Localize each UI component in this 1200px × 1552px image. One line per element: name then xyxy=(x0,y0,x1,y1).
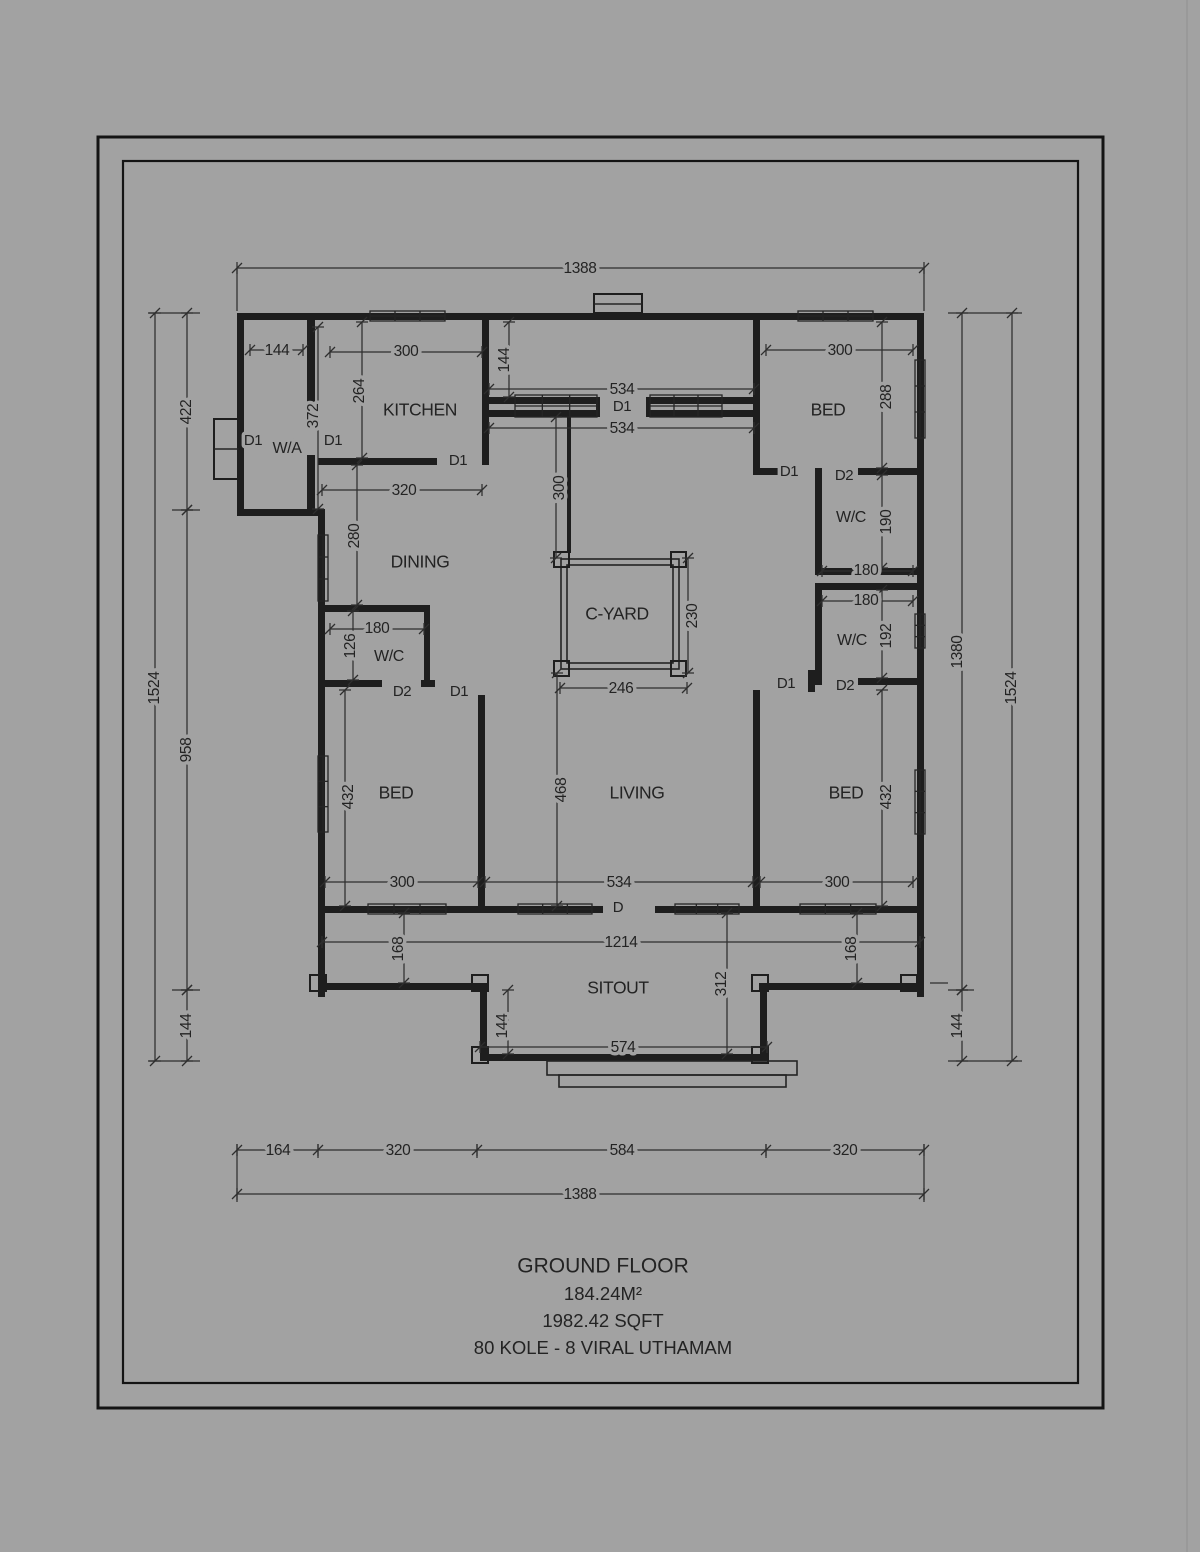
dim-sitout-144: 144 xyxy=(494,1013,511,1038)
dim-cyard-230: 230 xyxy=(684,603,701,628)
door-d1-wa-ext: D1 xyxy=(244,432,262,449)
room-bed2: BED xyxy=(829,783,864,803)
wall-kitchen-bottom xyxy=(318,458,437,465)
dim-sitout-312: 312 xyxy=(713,972,730,997)
dim-corridor-144: 144 xyxy=(496,347,513,372)
room-wa: W/A xyxy=(272,440,302,457)
room-cyard: C-YARD xyxy=(585,604,648,624)
wall-passage-lower-right xyxy=(646,410,754,417)
title-block: GROUND FLOOR 184.24M² 1982.42 SQFT 80 KO… xyxy=(474,1255,732,1358)
room-kitchen: KITCHEN xyxy=(383,400,457,420)
dim-right-1380: 1380 xyxy=(949,635,966,669)
door-d1-bed1: D1 xyxy=(780,463,798,480)
wcl-door-jamb xyxy=(421,680,435,687)
dim-bed2-432: 432 xyxy=(878,785,895,810)
dim-bed1-300: 300 xyxy=(828,342,853,359)
dim-right-144: 144 xyxy=(949,1013,966,1038)
room-dining: DINING xyxy=(391,552,450,572)
steps xyxy=(547,1061,797,1087)
door-d2-wcl: D2 xyxy=(393,683,411,700)
dim-living-468: 468 xyxy=(553,778,570,803)
dim-1214: 1214 xyxy=(605,934,639,951)
top-step xyxy=(594,294,642,313)
door-d1-bedl: D1 xyxy=(450,683,468,700)
wall-wcl-bottom xyxy=(325,680,382,687)
dim-bottom-584: 584 xyxy=(610,1142,635,1159)
wall-wa-right-upper xyxy=(307,320,315,415)
dim-bedl-300: 300 xyxy=(390,874,415,891)
dim-left-422: 422 xyxy=(178,400,195,425)
wa-door-landing xyxy=(214,419,239,479)
wall-left-lower xyxy=(318,509,325,997)
dim-kitchen-264: 264 xyxy=(351,378,368,403)
dim-534-lower: 534 xyxy=(610,420,635,437)
wall-wcl-right xyxy=(424,605,430,687)
outer-frame xyxy=(98,137,1103,1408)
door-d1-bed2: D1 xyxy=(777,675,795,692)
wall-passage-lower-left xyxy=(489,410,600,417)
dim-dining-280: 280 xyxy=(346,523,363,548)
wall-wa-left xyxy=(237,313,244,516)
room-wc2: W/C xyxy=(837,632,867,649)
dim-top-1388: 1388 xyxy=(564,260,597,277)
dim-left-1524: 1524 xyxy=(146,671,163,705)
dim-cyard-246: 246 xyxy=(609,680,634,697)
wall-wc1-left xyxy=(815,492,822,575)
dim-wc1-190: 190 xyxy=(878,509,895,534)
wall-passage-upper-right xyxy=(646,397,754,404)
screenshot-root: { "canvas": { "background": "#a2a2a2", "… xyxy=(0,0,1200,1552)
room-living: LIVING xyxy=(610,783,665,803)
door-d2-wc2: D2 xyxy=(836,677,854,694)
wall-wc2-bottom xyxy=(858,678,924,685)
dim-bottom-164: 164 xyxy=(266,1142,291,1159)
wall-wa-right-lower xyxy=(307,455,315,509)
wall-wc2-top xyxy=(822,583,917,590)
dim-168-right: 168 xyxy=(843,937,860,962)
wall-wcl-top xyxy=(325,605,430,612)
wall-bed2-left xyxy=(753,690,760,913)
kole-note: 80 KOLE - 8 VIRAL UTHAMAM xyxy=(474,1337,732,1358)
dim-bottom-320b: 320 xyxy=(833,1142,858,1159)
door-d1-wa-kitchen: D1 xyxy=(324,432,342,449)
dim-bedl-432: 432 xyxy=(340,785,357,810)
dim-wa-144: 144 xyxy=(265,342,290,359)
wall-wa-bottom xyxy=(237,509,322,516)
drawing-title: GROUND FLOOR xyxy=(517,1255,689,1278)
door-d2-wc1: D2 xyxy=(835,467,853,484)
room-wc1: W/C xyxy=(836,509,866,526)
room-sitout: SITOUT xyxy=(587,978,649,998)
dim-bed2-300: 300 xyxy=(825,874,850,891)
room-bed1: BED xyxy=(811,400,846,420)
dim-wa-372: 372 xyxy=(305,404,322,429)
room-wcl: W/C xyxy=(374,648,404,665)
dim-kitchen-320: 320 xyxy=(392,482,417,499)
door-d1-corridor: D1 xyxy=(613,398,631,415)
dim-sitout-574: 574 xyxy=(611,1039,636,1056)
dim-bottom-320a: 320 xyxy=(386,1142,411,1159)
dim-wcl-126: 126 xyxy=(342,634,359,659)
wall-wc2-left xyxy=(815,583,822,685)
door-d-living: D xyxy=(613,899,624,916)
dim-corridor-300: 300 xyxy=(551,475,568,500)
wall-bed1-bottom-right xyxy=(858,468,924,475)
dim-bottom-1388: 1388 xyxy=(564,1186,597,1203)
dim-kitchen-300: 300 xyxy=(394,343,419,360)
dim-left-144: 144 xyxy=(178,1013,195,1038)
dim-bed1-288: 288 xyxy=(878,385,895,410)
dim-right-1524: 1524 xyxy=(1003,671,1020,705)
area-m2: 184.24M² xyxy=(564,1283,642,1304)
dim-wc2-180: 180 xyxy=(854,592,879,609)
floor-plan-canvas: 1388144300300144534D1534288KITCHENBEDD1W… xyxy=(0,0,1200,1552)
wc2-door-jamb xyxy=(808,670,815,692)
door-d1-kitchen: D1 xyxy=(449,452,467,469)
area-sqft: 1982.42 SQFT xyxy=(542,1310,663,1331)
page-edge-shadow xyxy=(1186,0,1188,1552)
wall-porch-left xyxy=(480,990,487,1061)
dim-left-958: 958 xyxy=(178,738,195,763)
dim-534-upper: 534 xyxy=(610,381,635,398)
dim-wc2-192: 192 xyxy=(878,624,895,649)
wc1-door-jamb xyxy=(815,468,822,492)
dim-wc1-180: 180 xyxy=(854,562,879,579)
dim-wcl-180: 180 xyxy=(365,620,390,637)
dim-168-left: 168 xyxy=(390,937,407,962)
wall-bed1-left xyxy=(753,320,760,475)
wall-sitout-front-right xyxy=(759,983,924,990)
room-bedl: BED xyxy=(379,783,414,803)
dim-living-534: 534 xyxy=(607,874,632,891)
